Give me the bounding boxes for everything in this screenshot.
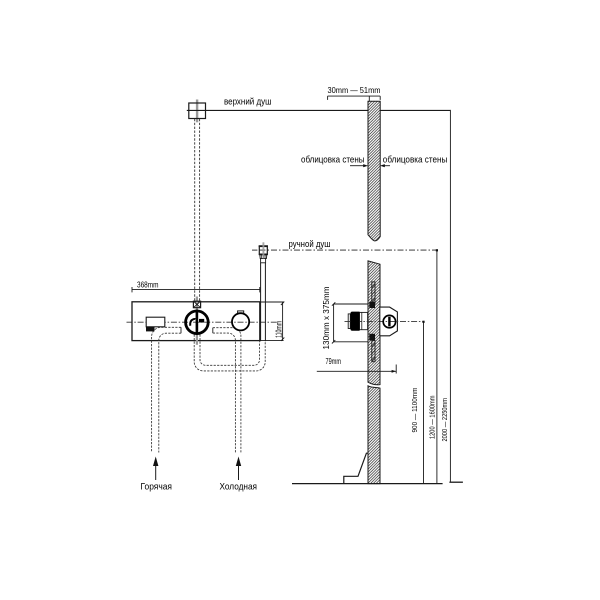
svg-text:Холодная: Холодная [220,482,258,492]
svg-text:110mm: 110mm [275,321,284,338]
svg-text:верхний душ: верхний душ [224,96,272,106]
svg-text:2000 — 2250mm: 2000 — 2250mm [442,398,449,442]
svg-text:79mm: 79mm [326,357,342,366]
svg-text:облицовка стены: облицовка стены [301,154,365,164]
svg-text:368mm: 368mm [137,281,159,290]
svg-text:30mm — 51mm: 30mm — 51mm [328,86,381,95]
svg-text:Горячая: Горячая [141,482,173,492]
svg-text:130mm x 375mm: 130mm x 375mm [322,286,331,349]
svg-text:1200 — 1600mm: 1200 — 1600mm [430,395,437,439]
svg-text:ручной душ: ручной душ [289,239,331,249]
svg-text:900 — 1100mm: 900 — 1100mm [412,387,419,432]
svg-text:облицовка стены: облицовка стены [383,154,448,164]
